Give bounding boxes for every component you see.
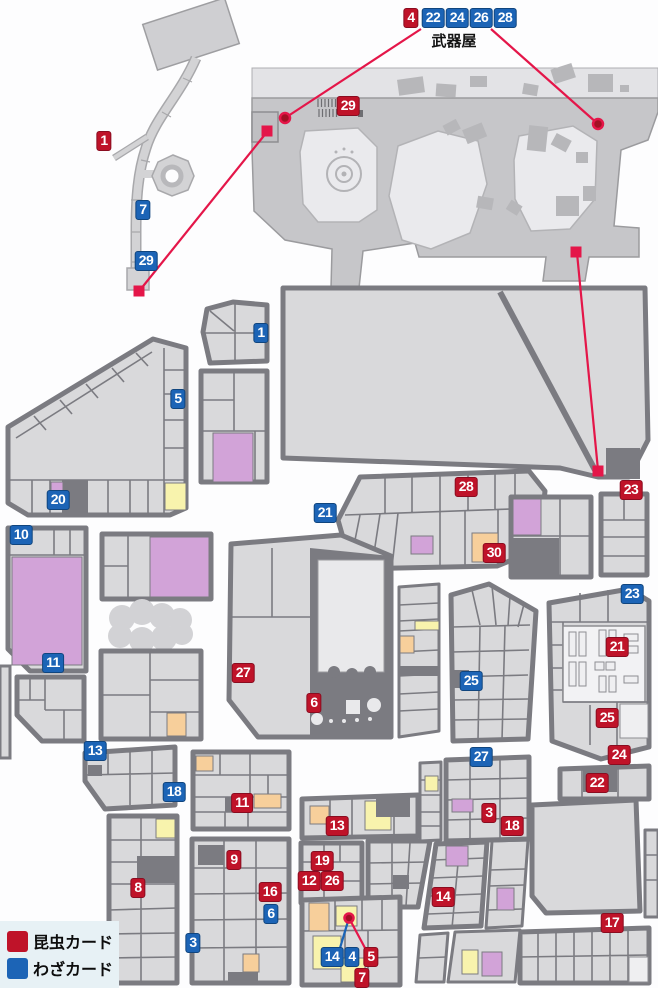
map-marker-waza-28: 28 bbox=[494, 8, 517, 28]
map-marker-insect-27: 27 bbox=[232, 663, 255, 683]
map-marker-insect-19: 19 bbox=[311, 851, 334, 871]
map-marker-waza-5: 5 bbox=[170, 389, 185, 409]
map-marker-waza-29: 29 bbox=[135, 251, 158, 271]
map-marker-insect-3: 3 bbox=[481, 803, 496, 823]
map-marker-insect-30: 30 bbox=[483, 543, 506, 563]
map-marker-insect-23: 23 bbox=[620, 480, 643, 500]
map-marker-waza-13: 13 bbox=[84, 741, 107, 761]
map-marker-insect-26: 26 bbox=[321, 871, 344, 891]
map-marker-insect-16: 16 bbox=[259, 882, 282, 902]
map-marker-insect-22: 22 bbox=[586, 773, 609, 793]
map-marker-waza-26: 26 bbox=[470, 8, 493, 28]
map-marker-insect-25: 25 bbox=[596, 708, 619, 728]
map-marker-insect-4: 4 bbox=[403, 8, 418, 28]
map-marker-waza-3: 3 bbox=[185, 933, 200, 953]
legend-label-waza: わざカード bbox=[33, 956, 113, 980]
markers-layer: 1729422242628291520102128233023112721256… bbox=[0, 0, 658, 988]
map-marker-insect-11: 11 bbox=[231, 793, 253, 813]
map-marker-insect-8: 8 bbox=[130, 878, 145, 898]
legend-item-insect: 昆虫カード bbox=[7, 929, 119, 953]
legend: 昆虫カード わざカード bbox=[0, 921, 119, 988]
map-marker-waza-14: 14 bbox=[321, 947, 344, 967]
map-marker-waza-1: 1 bbox=[253, 323, 268, 343]
map-marker-insect-21: 21 bbox=[606, 637, 629, 657]
legend-item-waza: わざカード bbox=[7, 956, 119, 980]
map-marker-waza-4: 4 bbox=[344, 947, 359, 967]
map-marker-insect-18: 18 bbox=[501, 816, 524, 836]
guide-map: 1729422242628291520102128233023112721256… bbox=[0, 0, 658, 988]
map-marker-waza-22: 22 bbox=[422, 8, 445, 28]
legend-swatch bbox=[7, 931, 28, 952]
map-marker-insect-24: 24 bbox=[608, 745, 631, 765]
map-marker-waza-18: 18 bbox=[163, 782, 186, 802]
map-marker-insect-9: 9 bbox=[226, 850, 241, 870]
map-marker-insect-13: 13 bbox=[326, 816, 349, 836]
map-marker-insect-17: 17 bbox=[601, 913, 624, 933]
map-marker-waza-23: 23 bbox=[621, 584, 644, 604]
map-marker-insect-29: 29 bbox=[337, 96, 360, 116]
map-marker-insect-12: 12 bbox=[298, 871, 321, 891]
map-marker-insect-28: 28 bbox=[455, 477, 478, 497]
map-marker-waza-25: 25 bbox=[460, 671, 483, 691]
map-marker-insect-5: 5 bbox=[363, 947, 378, 967]
map-marker-waza-11: 11 bbox=[42, 653, 64, 673]
map-marker-waza-10: 10 bbox=[10, 525, 33, 545]
map-marker-insect-6: 6 bbox=[306, 693, 321, 713]
weapon-shop-label: 武器屋 bbox=[408, 30, 500, 51]
map-marker-waza-24: 24 bbox=[446, 8, 469, 28]
map-marker-insect-1: 1 bbox=[96, 131, 111, 151]
legend-label-insect: 昆虫カード bbox=[33, 929, 113, 953]
map-marker-waza-20: 20 bbox=[47, 490, 70, 510]
map-marker-waza-21: 21 bbox=[314, 503, 337, 523]
map-marker-waza-27: 27 bbox=[470, 747, 493, 767]
legend-swatch bbox=[7, 958, 28, 979]
map-marker-insect-14: 14 bbox=[432, 887, 455, 907]
map-marker-waza-6: 6 bbox=[263, 904, 278, 924]
map-marker-insect-7: 7 bbox=[354, 968, 369, 988]
map-marker-waza-7: 7 bbox=[135, 200, 150, 220]
